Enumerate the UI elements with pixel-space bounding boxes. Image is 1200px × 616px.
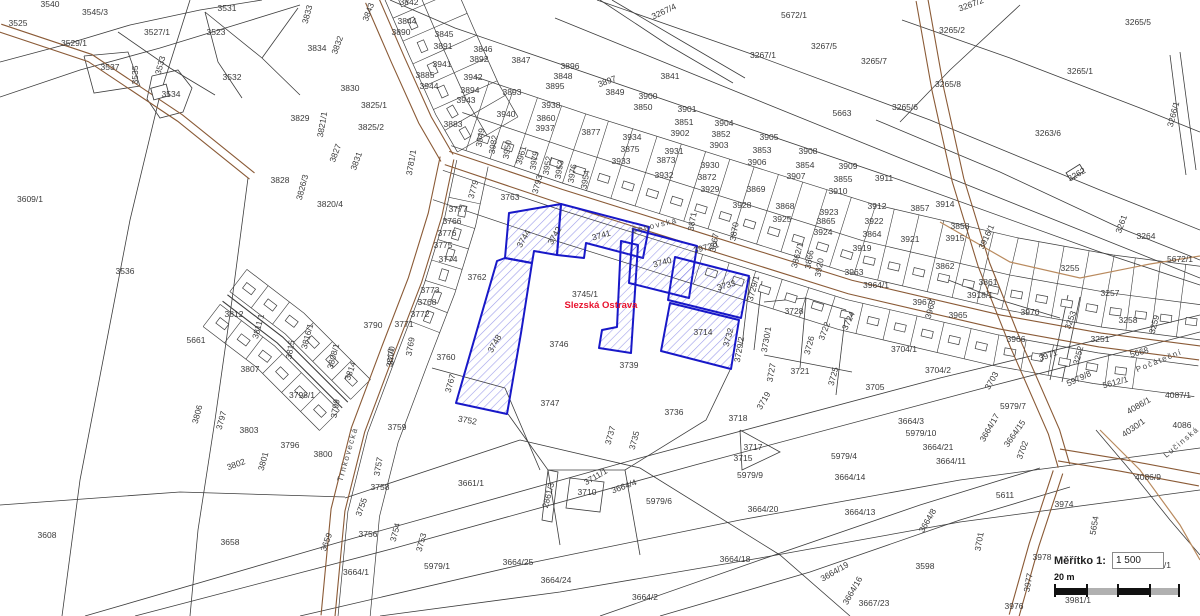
parcel-label: 5668 bbox=[1129, 345, 1150, 360]
parcel-label: 3814 bbox=[342, 360, 358, 381]
parcel-label: 3914 bbox=[936, 199, 955, 209]
parcel-label: 3933 bbox=[612, 156, 631, 166]
parcel-label: 3902 bbox=[671, 128, 690, 138]
parcel-label: 3719 bbox=[754, 390, 772, 412]
parcel-label: 3739 bbox=[620, 360, 639, 370]
parcel-label: 3265/7 bbox=[861, 56, 887, 66]
parcel-label: 3943 bbox=[457, 95, 476, 105]
parcel-label: 3815 bbox=[283, 339, 296, 360]
parcel-label: 3531 bbox=[218, 3, 237, 13]
parcel-label: 3781/1 bbox=[404, 149, 418, 177]
parcel-label: 3821/1 bbox=[315, 111, 329, 139]
parcel-label: 4086/9 bbox=[1135, 472, 1161, 482]
scale-bar bbox=[1054, 584, 1180, 597]
parcel-label: 3767 bbox=[443, 373, 458, 394]
parcel-label: 3966 bbox=[1007, 334, 1026, 344]
parcel-label: 3853 bbox=[753, 145, 772, 155]
parcel-label: 5979/1 bbox=[424, 561, 450, 571]
parcel-label: 3834 bbox=[308, 43, 327, 53]
parcel-label: 3954 bbox=[578, 169, 591, 190]
parcel-label: 3925 bbox=[773, 214, 792, 224]
parcel-label: 3265/8 bbox=[935, 79, 961, 89]
parcel-label: 3664/13 bbox=[845, 507, 876, 517]
parcel-label: 3811/1 bbox=[250, 312, 266, 339]
parcel-label: 3756 bbox=[359, 529, 378, 539]
parcel-label: 3952 bbox=[540, 155, 553, 176]
scale-bar-tick bbox=[1117, 584, 1119, 597]
parcel-label: 3911 bbox=[875, 173, 894, 183]
parcel-label: 3919 bbox=[853, 243, 872, 253]
parcel-label: 3609/1 bbox=[17, 194, 43, 204]
scale-bar-segment bbox=[1117, 588, 1149, 595]
parcel-label: 5979/7 bbox=[1000, 401, 1026, 411]
parcel-label: 3258 bbox=[1119, 315, 1138, 325]
parcel-label: 4086/1 bbox=[1125, 394, 1153, 416]
parcel-label: 5672/1 bbox=[781, 10, 807, 20]
parcel-label: 3267/4 bbox=[650, 1, 678, 21]
parcel-label: 3892 bbox=[470, 54, 489, 64]
parcel-label: 3861 bbox=[979, 277, 998, 287]
parcel-label: 3718 bbox=[729, 413, 748, 423]
parcel-label: 5654 bbox=[1087, 515, 1100, 536]
parcel-label: 3664/17 bbox=[977, 411, 1001, 443]
parcel-label: 3869 bbox=[747, 184, 766, 194]
parcel-label: 3910 bbox=[829, 186, 848, 196]
parcel-label: 5979/8 bbox=[1065, 368, 1093, 388]
parcel-label: 3820/4 bbox=[317, 199, 343, 209]
parcel-label: 3930 bbox=[701, 160, 720, 170]
parcel-label: 3704/1 bbox=[891, 344, 917, 354]
parcel-label: 3938 bbox=[542, 100, 561, 110]
parcel-label: 3944 bbox=[420, 81, 439, 91]
parcel-label: 3523 bbox=[207, 27, 226, 37]
parcel-label: 3928 bbox=[733, 200, 752, 210]
parcel-label: 3726 bbox=[802, 335, 817, 356]
parcel-label: 3855 bbox=[834, 174, 853, 184]
parcel-label: 3883 bbox=[444, 119, 463, 129]
parcel-label: 3255 bbox=[1061, 263, 1080, 273]
parcel-label: 3949 bbox=[473, 127, 486, 148]
parcel-label: 3529/1 bbox=[61, 38, 87, 48]
parcel-label: 3664/18 bbox=[720, 554, 751, 564]
parcel-label: 3798/1 bbox=[289, 390, 315, 400]
district-label: Slezská Ostrava bbox=[565, 300, 639, 311]
parcel-label: 3978 bbox=[1033, 552, 1052, 562]
parcel-label: 3912 bbox=[868, 201, 887, 211]
parcel-label: 3737 bbox=[603, 425, 618, 446]
parcel-label: 3664/2 bbox=[632, 592, 658, 602]
parcel-label: 3754 bbox=[388, 522, 403, 543]
parcel-label: 3659 bbox=[318, 531, 334, 552]
parcel-label: 3833 bbox=[300, 4, 315, 25]
parcel-label: 3746 bbox=[550, 339, 569, 349]
parcel-label: 3891 bbox=[434, 41, 453, 51]
parcel-label: 3800 bbox=[314, 449, 333, 459]
parcel-label: 3850 bbox=[634, 102, 653, 112]
parcel-label: 3759 bbox=[388, 422, 407, 432]
parcel-label: 3755 bbox=[353, 496, 369, 517]
parcel-label: 3802 bbox=[225, 456, 246, 472]
parcel-label: 3664/4 bbox=[610, 477, 638, 495]
parcel-label: 3977 bbox=[1021, 572, 1034, 593]
parcel-label: 3843 bbox=[360, 1, 376, 22]
parcel-label: 3806 bbox=[190, 404, 205, 425]
scale-bar-tick bbox=[1178, 584, 1180, 597]
scale-bar-label: 20 m bbox=[1054, 572, 1200, 582]
parcel-label: 3801 bbox=[256, 451, 271, 472]
parcel-label: 3265/5 bbox=[1125, 17, 1151, 27]
parcel-label: 3251 bbox=[1091, 334, 1110, 344]
parcel-label: 3828 bbox=[271, 175, 290, 185]
parcel-label: 3664/19 bbox=[819, 559, 851, 583]
parcel-label: 3774 bbox=[439, 254, 458, 264]
parcel-label: 3664/1 bbox=[343, 567, 369, 577]
parcel-label: 3852 bbox=[712, 129, 731, 139]
parcel-label: 3932 bbox=[655, 170, 674, 180]
parcel-label: 3799 bbox=[328, 398, 341, 419]
street-label: Trnkovecká bbox=[336, 426, 360, 482]
parcel-label: 3264 bbox=[1137, 231, 1156, 241]
parcel-label: 3773 bbox=[421, 285, 440, 295]
scale-bar-tick bbox=[1054, 584, 1056, 597]
parcel-label: 3265/6 bbox=[892, 102, 918, 112]
scale-bar-segment bbox=[1054, 588, 1086, 595]
parcel-label: 3864 bbox=[863, 229, 882, 239]
parcel-label: 3265/1 bbox=[1067, 66, 1093, 76]
parcel-label: 3766 bbox=[443, 216, 462, 226]
parcel-label: 3937 bbox=[536, 123, 555, 133]
parcel-label: 3772 bbox=[411, 309, 430, 319]
parcel-label: 3963 bbox=[845, 267, 864, 277]
parcel-label: 3857 bbox=[911, 203, 930, 213]
parcel-label: 3664/8 bbox=[917, 507, 939, 535]
parcel-label: 3745/1 bbox=[572, 289, 598, 299]
parcel-label: 3829 bbox=[291, 113, 310, 123]
parcel-label: 3810 bbox=[384, 348, 396, 368]
parcel-label: 3942 bbox=[464, 72, 483, 82]
scale-label: Měřítko 1: bbox=[1054, 555, 1106, 567]
parcel-label: 3728 bbox=[785, 306, 804, 316]
parcel-label: 3265/2 bbox=[939, 25, 965, 35]
parcel-label: 3775 bbox=[434, 240, 453, 250]
parcel-label: 3900 bbox=[639, 91, 658, 101]
parcel-label: 3263/6 bbox=[1035, 128, 1061, 138]
parcel-label: 3877 bbox=[582, 127, 601, 137]
parcel-label: 3664/21 bbox=[923, 442, 954, 452]
parcel-label: 3940 bbox=[497, 109, 516, 119]
parcel-label: 3841 bbox=[661, 71, 680, 81]
parcel-label: 3825/1 bbox=[361, 100, 387, 110]
parcel-label: 3896 bbox=[561, 61, 580, 71]
parcel-label: 3826/3 bbox=[294, 173, 310, 201]
parcel-label: 3534 bbox=[162, 89, 181, 99]
parcel-label: 3830 bbox=[341, 83, 360, 93]
parcel-label: 3540 bbox=[41, 0, 60, 9]
parcel-label: 3842 bbox=[400, 0, 419, 7]
parcel-label: 4086 bbox=[1173, 420, 1192, 430]
parcel-label: 3906 bbox=[748, 157, 767, 167]
parcel-label: 3545/3 bbox=[82, 7, 108, 17]
parcel-label: 3658 bbox=[221, 537, 240, 547]
parcel-label: 3895 bbox=[546, 81, 565, 91]
parcel-label: 3664/3 bbox=[898, 416, 924, 426]
parcel-label: 3267/5 bbox=[811, 41, 837, 51]
parcel-label: 3893 bbox=[503, 87, 522, 97]
parcel-label: 3779 bbox=[466, 179, 481, 200]
parcel-label: 3915 bbox=[946, 233, 965, 243]
parcel-label: 3261 bbox=[1113, 213, 1129, 234]
parcel-label: 3803 bbox=[240, 425, 259, 435]
parcel-label: 5672/1 bbox=[1167, 254, 1193, 264]
parcel-label: 5663 bbox=[833, 108, 852, 118]
parcel-label: 3904 bbox=[715, 118, 734, 128]
parcel-label: 3721 bbox=[791, 366, 810, 376]
road-left-lane bbox=[0, 32, 249, 179]
scale-input[interactable] bbox=[1112, 552, 1164, 569]
parcel-label: 3909 bbox=[839, 161, 858, 171]
parcel-label: 3259 bbox=[1147, 314, 1162, 335]
parcel-label: 5979/6 bbox=[646, 496, 672, 506]
parcel-label: 3974 bbox=[1055, 499, 1074, 509]
parcel-label: 3858 bbox=[951, 221, 970, 231]
parcel-label: 3890 bbox=[392, 27, 411, 37]
parcel-label: 3873 bbox=[657, 155, 676, 165]
parcel-label: 3950 bbox=[500, 139, 513, 160]
parcel-label: 3664/24 bbox=[541, 575, 572, 585]
parcel-label: 3664/20 bbox=[748, 504, 779, 514]
parcel-label: 3537 bbox=[101, 62, 120, 72]
cadastral-map: 35403545/335253529/135313527/13523353735… bbox=[0, 0, 1200, 616]
parcel-label: 3702 bbox=[1014, 439, 1030, 460]
parcel-label: 3848 bbox=[554, 71, 573, 81]
parcel-label: 5979/10 bbox=[906, 428, 937, 438]
parcel-label: 3885 bbox=[416, 70, 435, 80]
parcel-label: 3711/1 bbox=[582, 466, 609, 487]
parcel-label: 3790 bbox=[364, 320, 383, 330]
road-pocatecni bbox=[1058, 461, 1199, 486]
parcel-label: 3701 bbox=[972, 531, 985, 552]
parcel-label: 3763 bbox=[501, 192, 520, 202]
parcel-label: 3793 bbox=[530, 174, 545, 195]
parcel-label: 3953 bbox=[552, 159, 565, 180]
parcel-label: 3976 bbox=[1005, 601, 1024, 611]
parcel-label: 3717 bbox=[744, 442, 763, 452]
parcel-label: 3735 bbox=[627, 430, 642, 451]
parcel-label: 5611 bbox=[996, 490, 1015, 500]
parcel-label: 3851 bbox=[675, 117, 694, 127]
parcel-label: 3704/2 bbox=[925, 365, 951, 375]
parcel-label: 3769 bbox=[403, 336, 416, 357]
parcel-label: 3849 bbox=[606, 87, 625, 97]
parcel-label: 3796 bbox=[281, 440, 300, 450]
parcel-label: 3872 bbox=[698, 172, 717, 182]
parcel-label: 3771 bbox=[395, 319, 414, 329]
parcel-label: 3714 bbox=[694, 327, 713, 337]
parcel-label: 3979 bbox=[527, 150, 540, 171]
parcel-label: 3982 bbox=[486, 134, 499, 155]
parcel-label: 3921 bbox=[901, 234, 920, 244]
parcel-label: 3727 bbox=[764, 362, 777, 383]
parcel-label: 3710 bbox=[578, 487, 597, 497]
parcel-label: 3905 bbox=[760, 132, 779, 142]
parcel-label: 5661 bbox=[187, 335, 206, 345]
parcel-label: 3752 bbox=[457, 413, 478, 426]
scale-widget: Měřítko 1: 20 m bbox=[1054, 552, 1200, 597]
parcel-label: 3768 bbox=[418, 297, 437, 307]
parcel-label: 3777 bbox=[449, 204, 468, 214]
parcel-label: 3267/2 bbox=[957, 0, 985, 13]
parcel-label: 3918/1 bbox=[967, 290, 993, 300]
parcel-label: 3715 bbox=[734, 453, 753, 463]
parcel-label: 3825/2 bbox=[358, 122, 384, 132]
parcel-label: 4030/1 bbox=[1120, 416, 1147, 439]
parcel-label: 3961 bbox=[514, 145, 529, 166]
parcel-label: 3664/25 bbox=[503, 557, 534, 567]
parcel-label: 3908 bbox=[799, 146, 818, 156]
parcel-label: 3807 bbox=[241, 364, 260, 374]
parcel-label: 3758 bbox=[371, 482, 390, 492]
parcel-label: 3730/1 bbox=[759, 326, 773, 354]
parcel-label: 5979/4 bbox=[831, 451, 857, 461]
parcel-label: 3970 bbox=[1021, 307, 1040, 317]
parcel-label: 3776 bbox=[438, 228, 457, 238]
parcel-label: 3920 bbox=[812, 257, 825, 278]
parcel-label: 5979/9 bbox=[737, 470, 763, 480]
scale-bar-segment bbox=[1086, 588, 1118, 595]
parcel-label: 3736 bbox=[665, 407, 684, 417]
parcel-label: 3965 bbox=[949, 310, 968, 320]
parcel-label: 3844 bbox=[398, 16, 417, 26]
parcel-label: 3725 bbox=[826, 366, 841, 387]
scale-bar-segment bbox=[1149, 588, 1181, 595]
parcel-label: 3860 bbox=[537, 113, 556, 123]
parcel-label: 3525 bbox=[9, 18, 28, 28]
parcel-label: 3661/1 bbox=[458, 478, 484, 488]
parcel-label: 3934 bbox=[623, 132, 642, 142]
parcel-label: 3257 bbox=[1101, 288, 1120, 298]
parcel-label: 3536 bbox=[116, 266, 135, 276]
scale-bar-tick bbox=[1086, 584, 1088, 597]
parcel-label: 3865 bbox=[817, 216, 836, 226]
parcel-label: 3929 bbox=[701, 184, 720, 194]
parcel-label: 3941 bbox=[433, 59, 452, 69]
parcel-label: 3862 bbox=[936, 261, 955, 271]
parcel-label: 3832 bbox=[329, 34, 345, 55]
parcel-label: 3894 bbox=[461, 85, 480, 95]
parcel-label: 4087/1 bbox=[1165, 390, 1191, 400]
parcel-label: 3827 bbox=[327, 142, 343, 163]
parcel-label: 3831 bbox=[348, 150, 364, 171]
parcel-label: 3535 bbox=[130, 65, 140, 84]
parcel-label: 3871 bbox=[685, 211, 698, 232]
parcel-label: 3703 bbox=[982, 370, 1000, 392]
parcel-label: 3854 bbox=[796, 160, 815, 170]
parcel-label: 3760 bbox=[437, 352, 456, 362]
parcel-label: 3907 bbox=[787, 171, 806, 181]
parcel-label: 3845 bbox=[435, 29, 454, 39]
parcel-label: 3532 bbox=[223, 72, 242, 82]
parcel-label: 3527/1 bbox=[144, 27, 170, 37]
parcel-label: 3971 bbox=[1037, 347, 1058, 363]
parcel-label: 3757 bbox=[371, 456, 384, 477]
map-canvas: 35403545/335253529/135313527/13523353735… bbox=[0, 0, 1200, 616]
parcel-label: 3875 bbox=[621, 144, 640, 154]
parcel-label: 3922 bbox=[865, 216, 884, 226]
parcel-label: 3916/1 bbox=[976, 223, 996, 251]
parcel-label: 3903 bbox=[710, 140, 729, 150]
parcel-label: 3664/14 bbox=[835, 472, 866, 482]
parcel-label: 3901 bbox=[678, 104, 697, 114]
parcel-label: 3267/1 bbox=[750, 50, 776, 60]
parcel-label: 3964/1 bbox=[863, 280, 889, 290]
parcel-label: 3868 bbox=[776, 201, 795, 211]
parcel-label: 3812 bbox=[225, 309, 244, 319]
parcel-label: 3753 bbox=[414, 532, 429, 553]
parcel-label: 3762 bbox=[468, 272, 487, 282]
parcel-label: 3976 bbox=[565, 163, 578, 184]
parcel-label: 3705 bbox=[866, 382, 885, 392]
scale-bar-tick bbox=[1149, 584, 1151, 597]
parcel-label: 3846 bbox=[474, 44, 493, 54]
parcel-label: 3664/11 bbox=[936, 456, 966, 466]
parcel-label: 3924 bbox=[814, 227, 833, 237]
parcel-label: 3747 bbox=[541, 398, 560, 408]
parcel-label: 3608 bbox=[38, 530, 57, 540]
parcel-label: 3847 bbox=[512, 55, 531, 65]
parcel-label: 3667/23 bbox=[859, 598, 890, 608]
parcel-label: 3598 bbox=[916, 561, 935, 571]
